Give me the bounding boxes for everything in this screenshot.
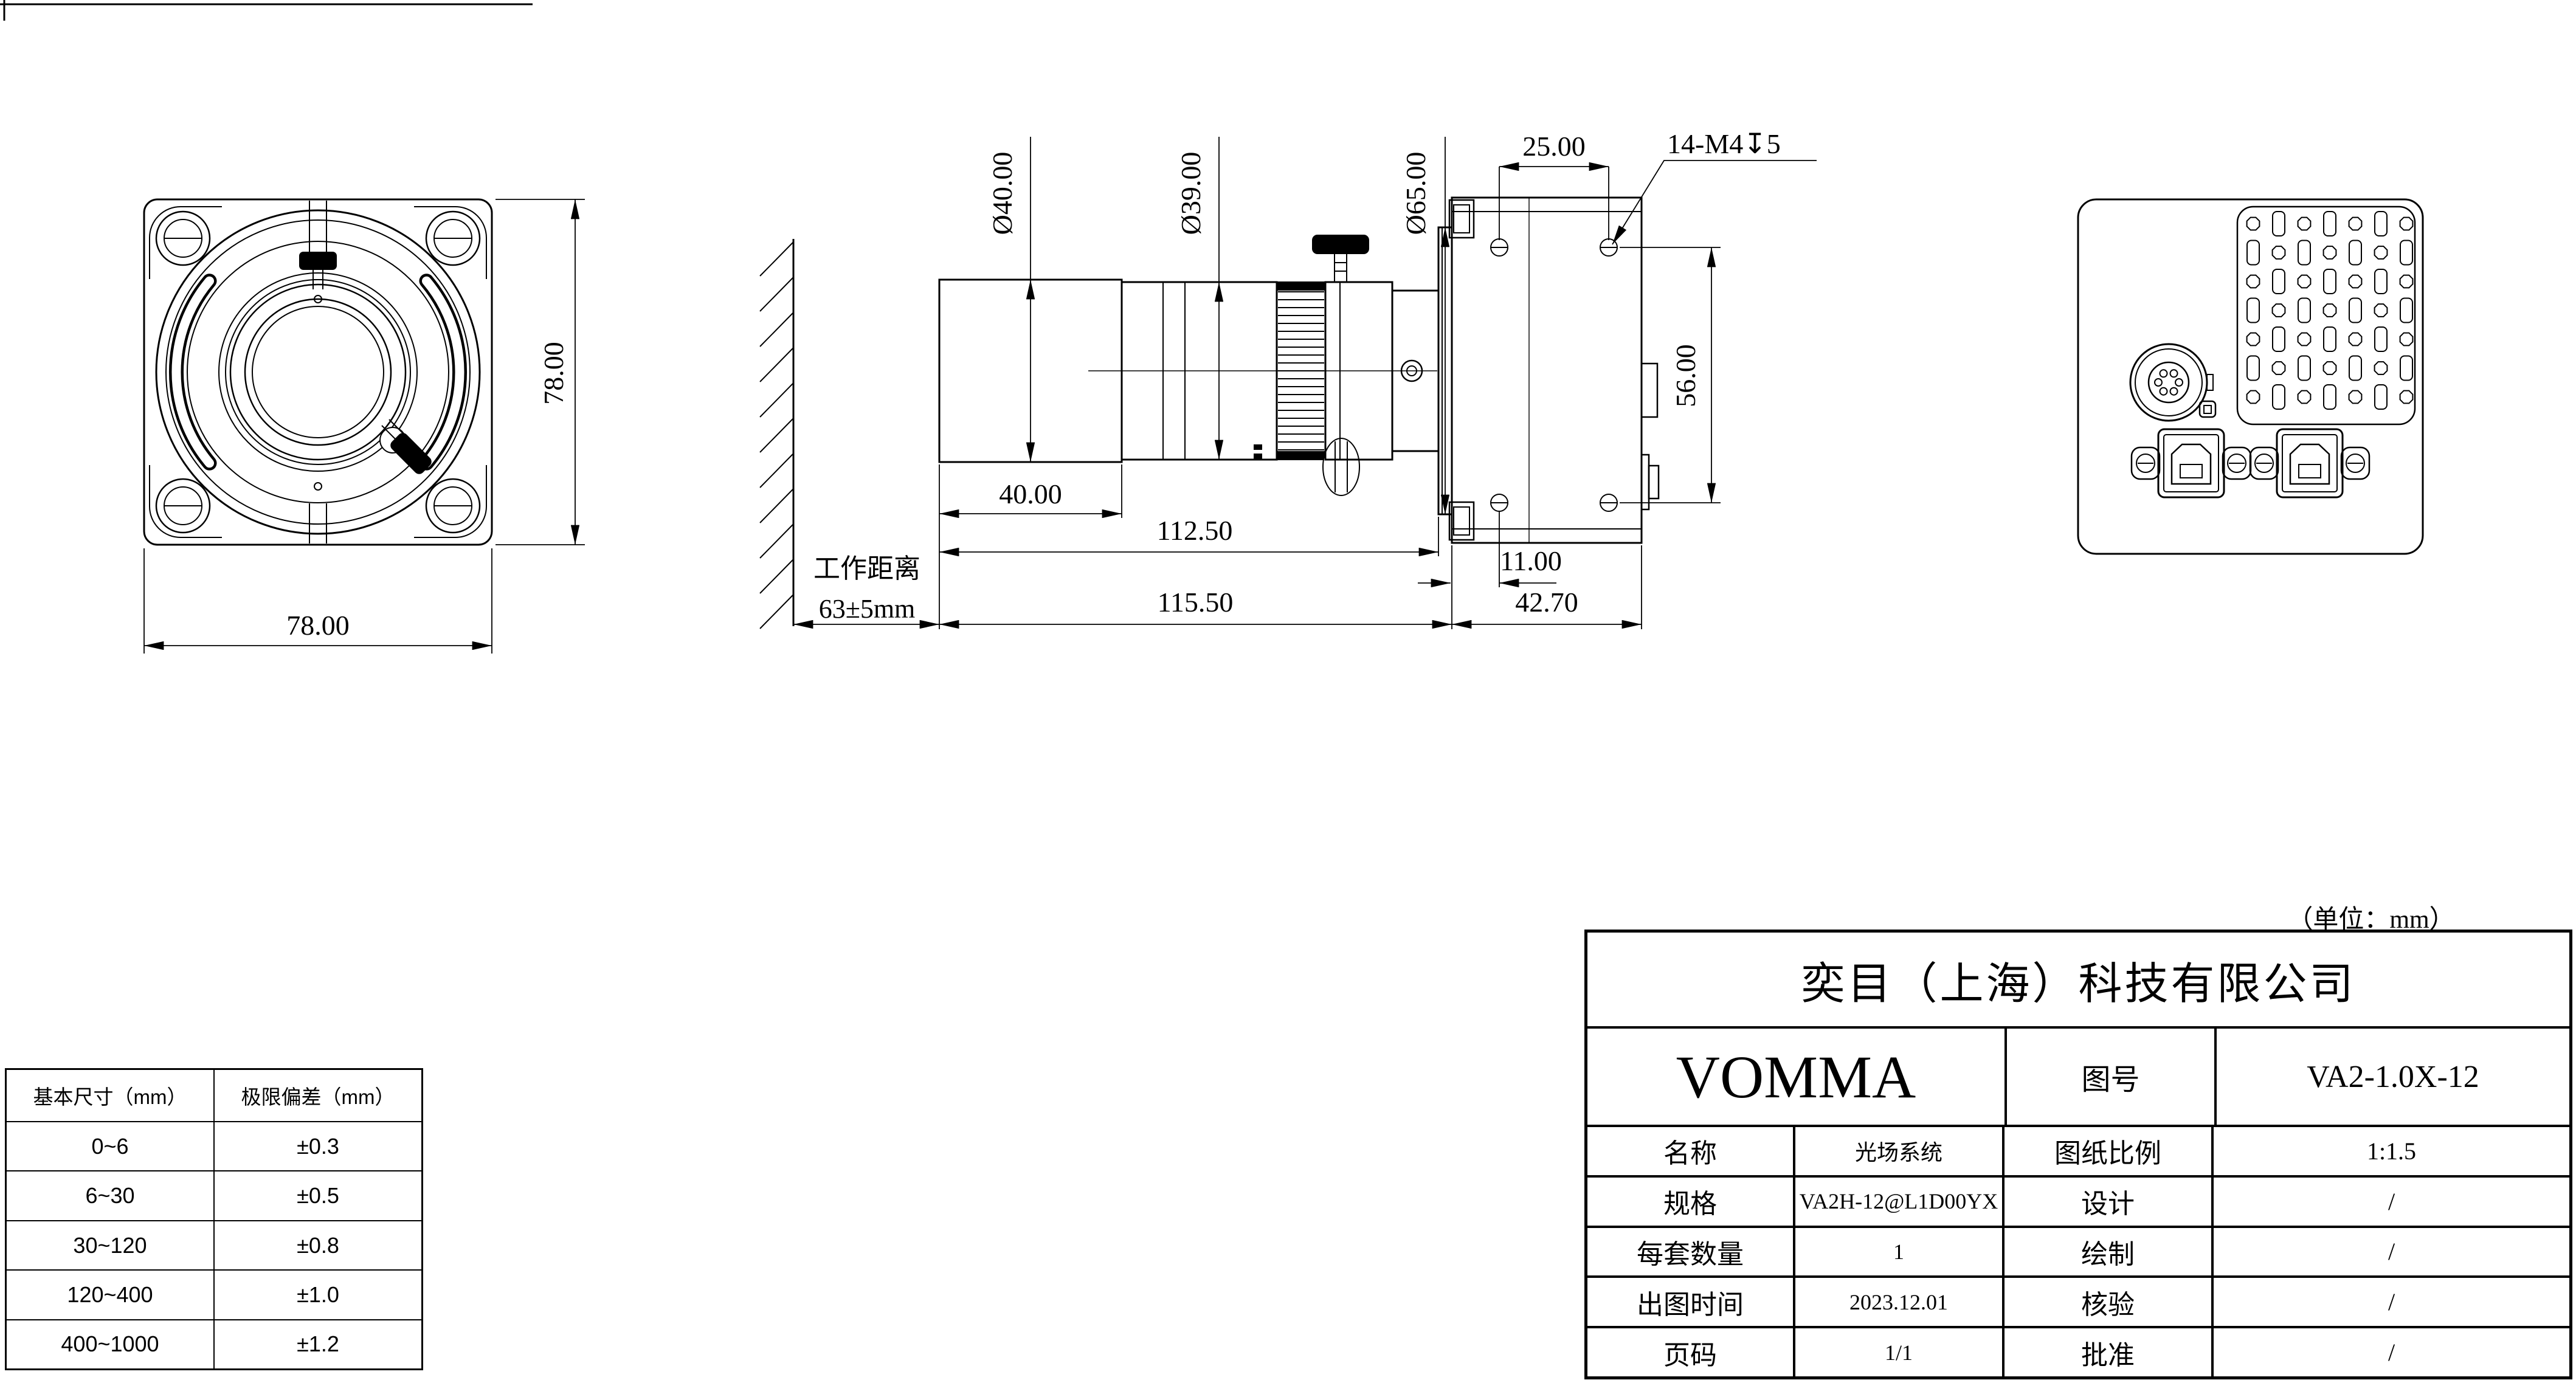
dim-height-label: 78.00: [538, 342, 569, 405]
table-row: 30~120 ±0.8: [7, 1221, 421, 1271]
dim-112-label: 112.50: [1157, 515, 1233, 546]
side-view: 工作距离 63±5mm Ø40.00 Ø39.00 Ø65.00: [760, 128, 1817, 629]
working-distance-value: 63±5mm: [819, 594, 916, 624]
tolerance-header-limit: 极限偏差（mm）: [215, 1070, 421, 1121]
dim-56-label: 56.00: [1670, 344, 1701, 407]
dim-25-label: 25.00: [1522, 131, 1586, 162]
dim-115-label: 115.50: [1158, 587, 1234, 618]
table-row: 规格 VA2H-12@L1D00YX 设计 /: [1587, 1178, 2569, 1228]
drawing-sheet: 78.00 78.00: [0, 0, 2576, 1380]
dim-42-label: 42.70: [1515, 587, 1578, 618]
drawing-no-label: 图号: [2007, 1029, 2217, 1125]
table-row: VOMMA 图号 VA2-1.0X-12: [1587, 1029, 2569, 1127]
front-view: 78.00 78.00: [144, 199, 585, 654]
drawing-no-value: VA2-1.0X-12: [2217, 1029, 2569, 1125]
wall-hatching: [760, 242, 793, 629]
tolerance-table: 基本尺寸（mm） 极限偏差（mm） 0~6 ±0.3 6~30 ±0.5 30~…: [5, 1068, 423, 1370]
tolerance-table-header: 基本尺寸（mm） 极限偏差（mm）: [7, 1070, 421, 1122]
aperture-thumbwheel: [1323, 438, 1359, 495]
working-distance-label: 工作距离: [813, 554, 920, 584]
table-row: 出图时间 2023.12.01 核验 /: [1587, 1278, 2569, 1328]
table-row: 名称 光场系统 图纸比例 1:1.5: [1587, 1127, 2569, 1178]
dim-40-label: 40.00: [999, 478, 1062, 509]
dia-39-label: Ø39.00: [1175, 152, 1206, 235]
rear-view: [2078, 199, 2423, 554]
table-row: 120~400 ±1.0: [7, 1271, 421, 1320]
dim-width-label: 78.00: [286, 610, 350, 641]
table-row: 0~6 ±0.3: [7, 1122, 421, 1171]
usb-connector-icon: [2132, 429, 2369, 497]
table-row: 每套数量 1 绘制 /: [1587, 1228, 2569, 1278]
camera-body-side: [1449, 198, 1659, 543]
dia-65-label: Ø65.00: [1400, 152, 1431, 235]
company-name: 奕目（上海）科技有限公司: [1587, 933, 2569, 1029]
table-row: 页码 1/1 批准 /: [1587, 1328, 2569, 1376]
m4-hole-icon: [1491, 239, 1617, 511]
dia-40-label: Ø40.00: [987, 152, 1018, 235]
brand-name: VOMMA: [1587, 1029, 2007, 1125]
sheet-border: [0, 0, 533, 21]
front-dimensions: 78.00 78.00: [144, 199, 585, 654]
circular-connector-icon: [2130, 344, 2213, 421]
table-row: 6~30 ±0.5: [7, 1171, 421, 1221]
indicator-icon: [2200, 401, 2215, 417]
side-top-knob: [1312, 235, 1369, 282]
thread-callout-label: 14-M4↧5: [1667, 128, 1781, 159]
table-row: 400~1000 ±1.2: [7, 1320, 421, 1368]
dim-11-label: 11.00: [1500, 545, 1562, 576]
vent-holes: [2247, 212, 2413, 409]
title-block: 奕目（上海）科技有限公司 VOMMA 图号 VA2-1.0X-12 名称 光场系…: [1584, 930, 2572, 1379]
front-top-knob: [299, 201, 337, 303]
tolerance-header-basic: 基本尺寸（mm）: [7, 1070, 215, 1121]
